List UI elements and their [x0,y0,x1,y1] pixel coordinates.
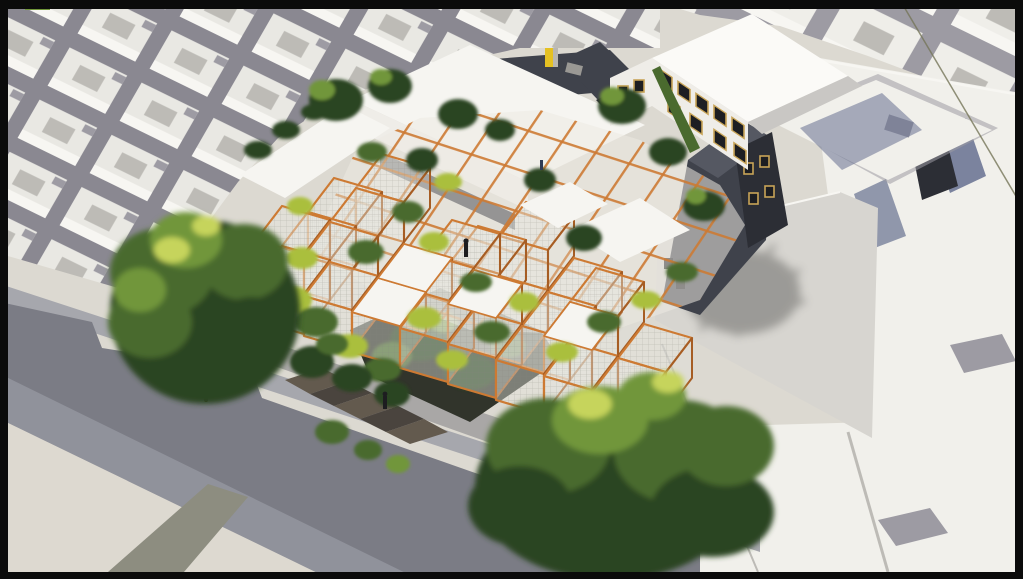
tree-left [108,212,300,404]
render-frame [0,0,1023,579]
person-on-bridge [463,238,468,257]
architectural-render [0,0,1023,579]
person-walkway [540,160,543,170]
person-on-street [383,392,388,409]
stair-bulkhead-yellow [545,48,553,67]
